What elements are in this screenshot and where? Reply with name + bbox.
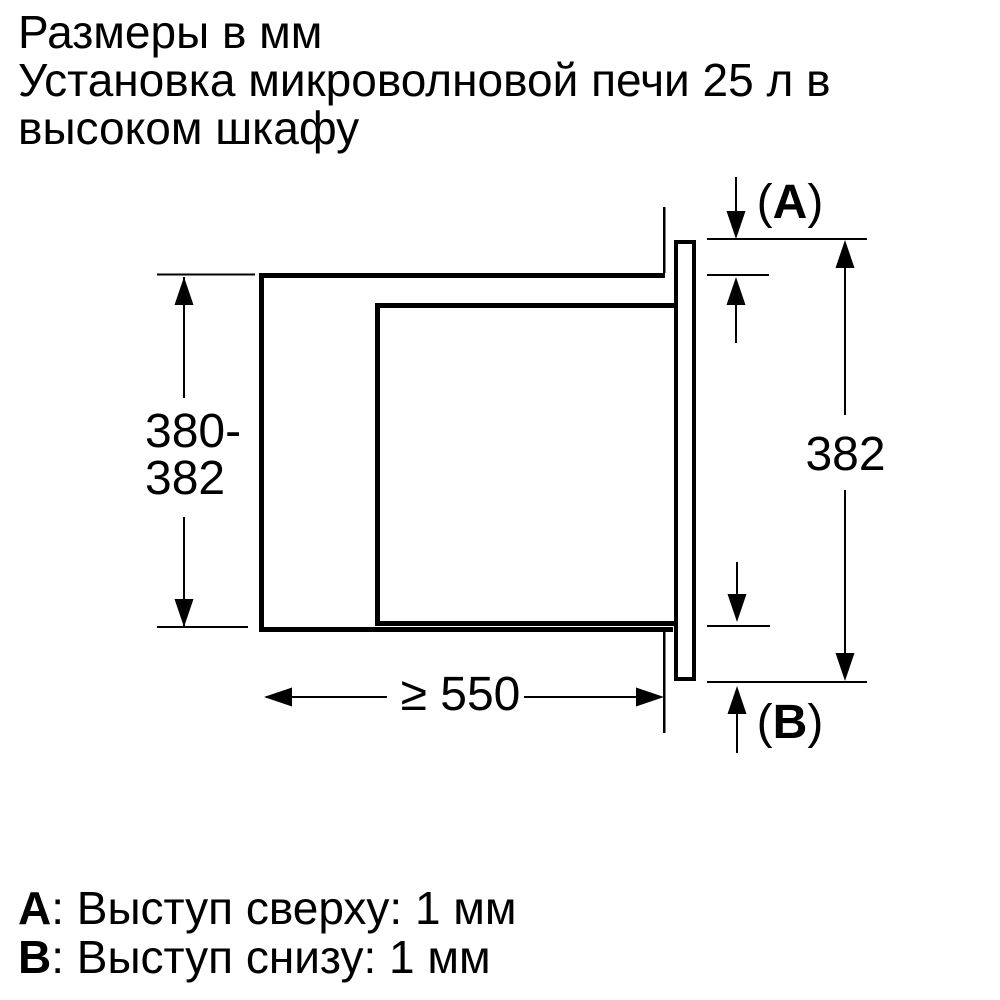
cabinet-front-edge-upper-line (663, 207, 666, 273)
dim-line-door-top-level (707, 238, 867, 240)
legend-item-b-letter: B (18, 931, 51, 983)
arrow-niche-tail (736, 562, 738, 594)
page: Размеры в мм Установка микроволновой печ… (0, 0, 1000, 1000)
dim-line-cabinet-bottom-level (707, 625, 770, 627)
cabinet-top-panel (259, 273, 665, 278)
door-front-panel (676, 242, 694, 679)
arrowhead-niche-up (727, 277, 746, 305)
microwave-bottom-edge (375, 621, 675, 626)
arrow-a-tail (735, 177, 737, 212)
arrowhead-left (264, 688, 292, 707)
legend-item-a: A: Выступ сверху: 1 мм (18, 884, 517, 933)
callout-a: (A) (742, 179, 838, 227)
callout-a-close-paren: ) (807, 176, 823, 229)
legend-item-a-letter: A (18, 882, 51, 934)
microwave-top-edge (375, 303, 675, 308)
cabinet-bottom-panel (259, 627, 673, 632)
legend: A: Выступ сверху: 1 мм B: Выступ снизу: … (18, 884, 517, 982)
dim-line-upper-segment (844, 268, 846, 415)
legend-item-b-text: : Выступ снизу: 1 мм (51, 931, 490, 983)
microwave-body-outline (375, 303, 675, 626)
dim-line-door-bottom-level (707, 681, 867, 683)
extension-line-bottom (157, 626, 248, 628)
arrowhead-right (636, 688, 664, 707)
arrowhead-down (175, 599, 194, 627)
callout-b: (B) (742, 699, 838, 747)
arrow-b-tail (736, 714, 738, 753)
callout-b-open-paren: ( (757, 696, 773, 749)
arrow-niche-tail (735, 305, 737, 343)
dim-niche-height-line2: 382 (145, 455, 241, 502)
extension-line-top (157, 274, 255, 276)
cabinet-left-wall (259, 273, 264, 632)
dim-niche-height-line1: 380- (145, 408, 241, 455)
arrowhead-up (836, 240, 855, 268)
callout-a-open-paren: ( (757, 176, 773, 229)
callout-a-letter: A (773, 176, 808, 229)
dim-label-niche-height: 380- 382 (145, 408, 241, 502)
dim-label-min-depth: ≥ 550 (383, 671, 538, 718)
legend-item-b: B: Выступ снизу: 1 мм (18, 933, 517, 982)
cabinet-outline (259, 207, 673, 733)
dim-line-cabinet-top-level (707, 274, 769, 276)
callout-b-letter: B (773, 696, 808, 749)
microwave-rear-wall (375, 303, 380, 626)
dim-label-front-height: 382 (793, 431, 898, 478)
arrowhead-niche-down (728, 594, 747, 622)
arrowhead-down (836, 653, 855, 681)
arrowhead-up (175, 277, 194, 305)
callout-b-close-paren: ) (807, 696, 823, 749)
dim-line-lower-segment (844, 490, 846, 653)
cabinet-front-edge-lower-line (663, 632, 666, 733)
legend-item-a-text: : Выступ сверху: 1 мм (51, 882, 516, 934)
dim-line-right-segment (524, 696, 637, 698)
